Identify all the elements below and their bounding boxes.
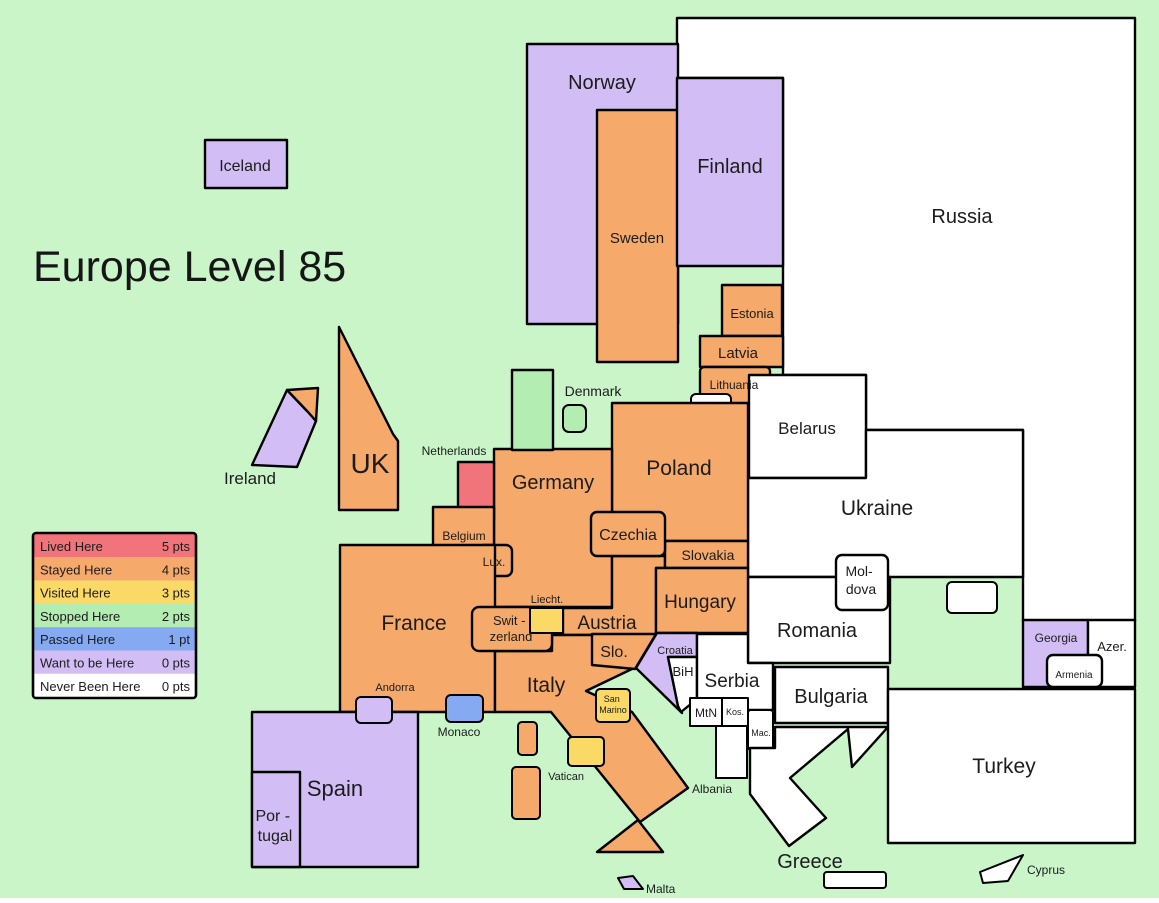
country-liechtenstein: [530, 608, 563, 633]
label-vatican: Vatican: [548, 771, 584, 783]
label-germany: Germany: [512, 472, 594, 494]
label-san-marino-line2: Marino: [599, 705, 627, 715]
label-uk: UK: [351, 448, 390, 479]
legend-points-passed: 1 pt: [168, 632, 190, 647]
label-albania: Albania: [692, 782, 732, 796]
label-serbia: Serbia: [705, 671, 760, 692]
label-slovenia: Slo.: [600, 644, 628, 661]
label-liechtenstein: Liecht.: [531, 594, 563, 606]
crete-island: [824, 872, 886, 888]
sardinia-island: [512, 767, 540, 819]
label-switzerland-line2: zerland: [490, 629, 533, 644]
label-andorra: Andorra: [375, 682, 415, 694]
label-estonia: Estonia: [730, 306, 774, 321]
label-portugal-line2: tugal: [258, 828, 293, 845]
label-ireland: Ireland: [224, 469, 276, 488]
legend-label-passed: Passed Here: [40, 632, 115, 647]
label-armenia: Armenia: [1055, 670, 1093, 681]
legend: Lived Here 5 pts Stayed Here 4 pts Visit…: [33, 533, 196, 698]
label-netherlands: Netherlands: [422, 444, 487, 458]
label-hungary: Hungary: [664, 592, 736, 613]
label-switzerland: Swit - zerland: [490, 613, 533, 644]
label-italy: Italy: [527, 674, 566, 697]
label-sweden: Sweden: [610, 230, 664, 247]
label-romania: Romania: [777, 620, 858, 642]
label-azerbaijan: Azer.: [1097, 639, 1127, 654]
label-luxembourg: Lux.: [483, 555, 506, 569]
legend-label-want: Want to be Here: [40, 656, 134, 671]
label-norway: Norway: [568, 72, 636, 94]
label-russia: Russia: [931, 206, 993, 228]
label-denmark: Denmark: [565, 383, 623, 399]
legend-label-visited: Visited Here: [40, 586, 111, 601]
label-moldova-line1: Mol-: [845, 563, 873, 579]
country-albania: [716, 726, 747, 778]
label-turkey: Turkey: [972, 755, 1036, 778]
label-slovakia: Slovakia: [682, 547, 735, 563]
legend-points-visited: 3 pts: [162, 586, 191, 601]
label-bulgaria: Bulgaria: [794, 686, 868, 708]
label-spain: Spain: [307, 776, 363, 801]
crimea-peninsula: [947, 582, 997, 613]
label-czechia: Czechia: [599, 527, 657, 544]
label-switzerland-line1: Swit -: [493, 613, 526, 628]
legend-label-stopped: Stopped Here: [40, 609, 120, 624]
legend-label-lived: Lived Here: [40, 539, 103, 554]
label-croatia: Croatia: [657, 645, 693, 657]
country-denmark: [512, 370, 553, 450]
label-cyprus: Cyprus: [1027, 863, 1065, 877]
country-vatican: [568, 737, 604, 766]
label-austria: Austria: [577, 613, 637, 634]
label-moldova-line2: dova: [846, 581, 877, 597]
label-finland: Finland: [697, 156, 763, 178]
label-france: France: [381, 612, 446, 635]
label-bih: BiH: [673, 664, 694, 679]
label-san-marino-line1: San: [604, 694, 620, 704]
country-denmark-island: [563, 405, 586, 432]
country-monaco: [446, 695, 483, 722]
legend-points-never: 0 pts: [162, 679, 191, 694]
label-iceland: Iceland: [219, 158, 271, 175]
label-monaco: Monaco: [438, 725, 481, 739]
europe-tile-map: Iceland Norway Sweden Finland Russia Est…: [0, 0, 1159, 898]
label-kosovo: Kos.: [726, 707, 744, 717]
label-portugal-line1: Por -: [255, 808, 290, 825]
label-belarus: Belarus: [778, 419, 836, 438]
label-ukraine: Ukraine: [841, 497, 913, 520]
legend-points-stayed: 4 pts: [162, 562, 191, 577]
label-poland: Poland: [646, 457, 711, 480]
label-latvia: Latvia: [718, 345, 759, 362]
legend-label-never: Never Been Here: [40, 679, 140, 694]
label-greece: Greece: [777, 851, 843, 873]
page-title: Europe Level 85: [33, 243, 346, 291]
legend-points-lived: 5 pts: [162, 539, 191, 554]
label-malta: Malta: [646, 882, 676, 896]
legend-label-stayed: Stayed Here: [40, 562, 112, 577]
label-belgium: Belgium: [442, 529, 485, 543]
corsica-island: [518, 722, 537, 755]
legend-points-want: 0 pts: [162, 656, 191, 671]
label-lithuania: Lithuania: [710, 378, 759, 392]
country-andorra: [356, 697, 392, 723]
label-montenegro: MtN: [695, 706, 717, 720]
legend-points-stopped: 2 pts: [162, 609, 191, 624]
label-macedonia: Mac.: [751, 728, 771, 738]
label-georgia: Georgia: [1035, 631, 1078, 645]
